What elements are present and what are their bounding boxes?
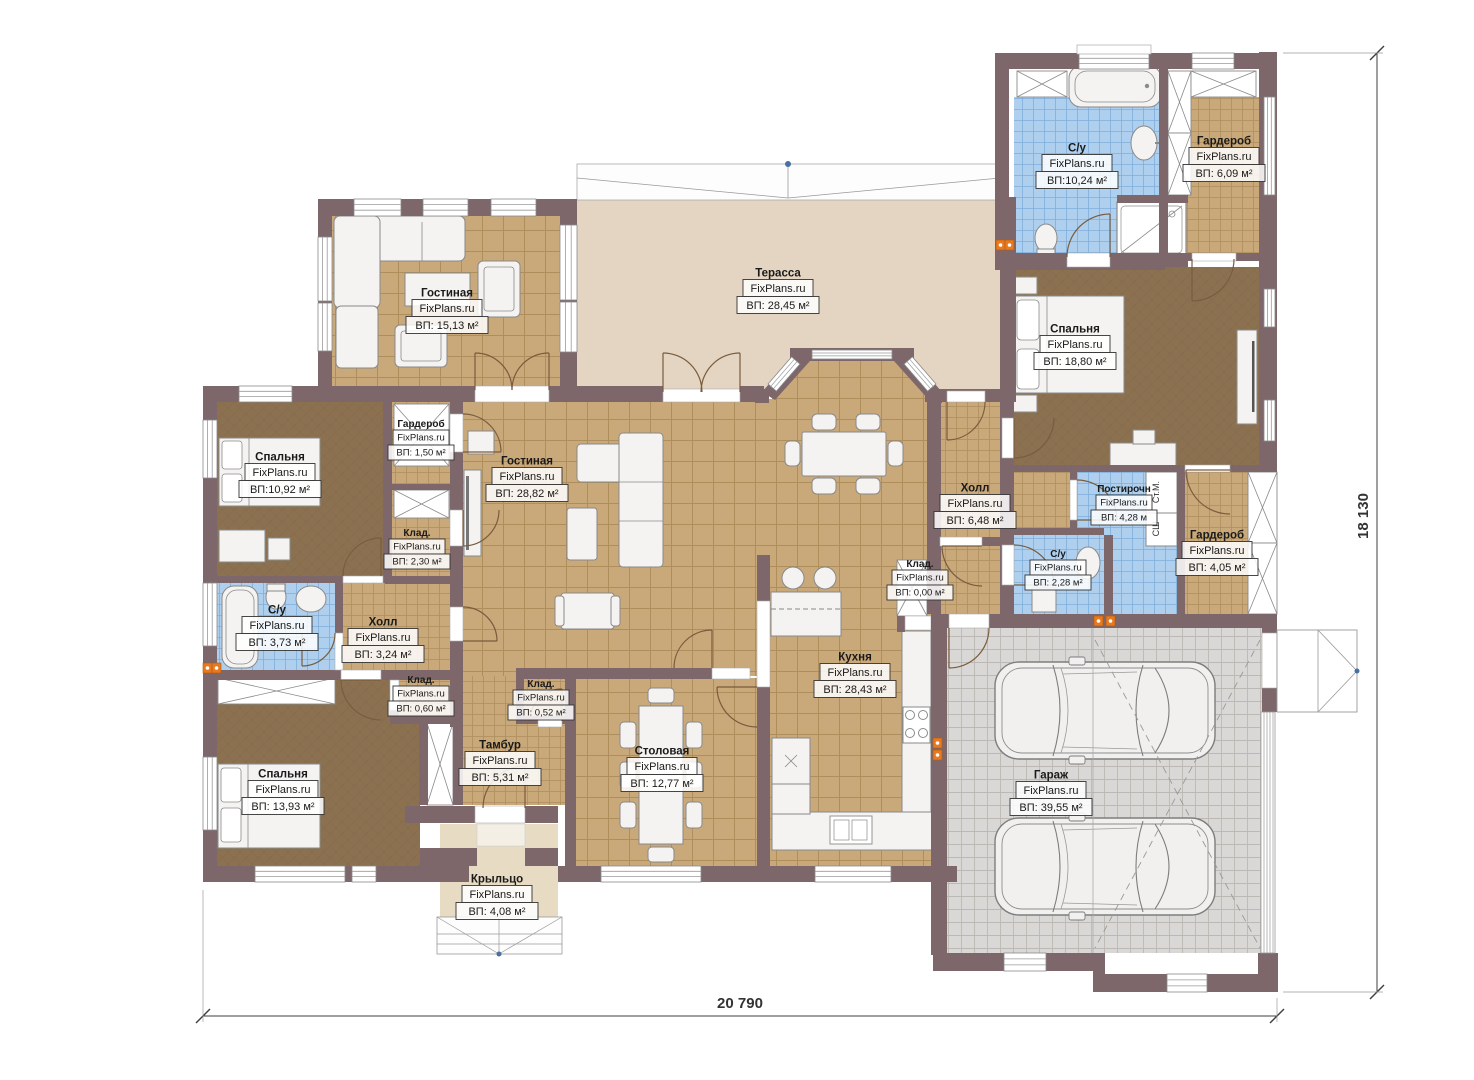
svg-text:FixPlans.ru: FixPlans.ru [1023, 785, 1078, 797]
svg-text:Гостиная: Гостиная [501, 456, 553, 468]
svg-text:FixPlans.ru: FixPlans.ru [419, 303, 474, 315]
svg-text:FixPlans.ru: FixPlans.ru [397, 433, 445, 444]
svg-text:FixPlans.ru: FixPlans.ru [255, 784, 310, 796]
svg-text:FixPlans.ru: FixPlans.ru [1049, 158, 1104, 170]
svg-text:FixPlans.ru: FixPlans.ru [355, 632, 410, 644]
svg-text:FixPlans.ru: FixPlans.ru [827, 667, 882, 679]
svg-text:Спальня: Спальня [255, 452, 305, 464]
svg-text:Постирочн: Постирочн [1097, 484, 1151, 495]
svg-text:Клад.: Клад. [906, 559, 933, 570]
svg-text:20 790: 20 790 [717, 995, 763, 1012]
svg-text:С/у: С/у [1050, 549, 1066, 560]
svg-text:ВП: 3,73 м²: ВП: 3,73 м² [248, 637, 305, 649]
svg-text:FixPlans.ru: FixPlans.ru [499, 471, 554, 483]
svg-text:ВП: 0,00 м²: ВП: 0,00 м² [895, 588, 944, 599]
svg-text:ВП: 4,05 м²: ВП: 4,05 м² [1188, 562, 1245, 574]
svg-text:FixPlans.ru: FixPlans.ru [750, 283, 805, 295]
svg-text:ВП: 18,80 м²: ВП: 18,80 м² [1043, 356, 1107, 368]
svg-text:FixPlans.ru: FixPlans.ru [1196, 151, 1251, 163]
svg-text:С/у: С/у [1068, 143, 1087, 155]
svg-text:Крыльцо: Крыльцо [471, 874, 523, 886]
svg-text:Гостиная: Гостиная [421, 288, 473, 300]
svg-text:Ст.М.: Ст.М. [1151, 481, 1161, 503]
svg-text:ВП: 0,60 м²: ВП: 0,60 м² [396, 704, 445, 715]
svg-text:Гардероб: Гардероб [397, 418, 444, 430]
svg-text:FixPlans.ru: FixPlans.ru [1100, 498, 1148, 509]
svg-text:С/у: С/у [268, 605, 287, 617]
svg-text:ВП: 5,31 м²: ВП: 5,31 м² [471, 772, 528, 784]
svg-text:ВП: 28,43 м²: ВП: 28,43 м² [823, 684, 887, 696]
svg-text:ВП: 6,09 м²: ВП: 6,09 м² [1195, 168, 1252, 180]
svg-text:FixPlans.ru: FixPlans.ru [469, 889, 524, 901]
svg-text:ВП: 2,28 м²: ВП: 2,28 м² [1033, 578, 1082, 589]
svg-text:Гардероб: Гардероб [1190, 530, 1244, 542]
svg-text:Клад.: Клад. [527, 679, 554, 690]
svg-text:FixPlans.ru: FixPlans.ru [472, 755, 527, 767]
svg-text:ВП: 39,55 м²: ВП: 39,55 м² [1019, 802, 1083, 814]
svg-text:FixPlans.ru: FixPlans.ru [896, 573, 944, 584]
svg-text:FixPlans.ru: FixPlans.ru [249, 620, 304, 632]
svg-text:ВП: 1,50 м²: ВП: 1,50 м² [396, 448, 445, 459]
svg-text:Спальня: Спальня [1050, 324, 1100, 336]
svg-text:FixPlans.ru: FixPlans.ru [397, 689, 445, 700]
svg-text:Спальня: Спальня [258, 769, 308, 781]
svg-text:ВП: 3,24 м²: ВП: 3,24 м² [354, 649, 411, 661]
svg-text:ВП: 28,45 м²: ВП: 28,45 м² [746, 300, 810, 312]
svg-text:Гараж: Гараж [1034, 770, 1069, 782]
svg-text:ВП:10,92 м²: ВП:10,92 м² [250, 484, 310, 496]
svg-text:ВП: 28,82 м²: ВП: 28,82 м² [495, 488, 559, 500]
svg-text:ВП:10,24 м²: ВП:10,24 м² [1047, 175, 1107, 187]
svg-text:ВП: 15,13 м²: ВП: 15,13 м² [415, 320, 479, 332]
svg-text:Холл: Холл [369, 617, 398, 629]
svg-text:FixPlans.ru: FixPlans.ru [252, 467, 307, 479]
svg-text:ВП: 6,48 м²: ВП: 6,48 м² [946, 515, 1003, 527]
svg-text:ВП: 12,77 м²: ВП: 12,77 м² [630, 778, 694, 790]
svg-text:Терасса: Терасса [755, 268, 801, 280]
svg-text:Столовая: Столовая [635, 746, 690, 758]
svg-text:FixPlans.ru: FixPlans.ru [393, 542, 441, 553]
svg-text:FixPlans.ru: FixPlans.ru [947, 498, 1002, 510]
svg-text:Гардероб: Гардероб [1197, 136, 1251, 148]
svg-text:FixPlans.ru: FixPlans.ru [1034, 563, 1082, 574]
svg-text:FixPlans.ru: FixPlans.ru [1189, 545, 1244, 557]
svg-text:Клад.: Клад. [407, 675, 434, 686]
svg-text:FixPlans.ru: FixPlans.ru [1047, 339, 1102, 351]
svg-text:Холл: Холл [961, 483, 990, 495]
svg-text:ВП: 4,28 м: ВП: 4,28 м [1101, 513, 1147, 524]
svg-text:FixPlans.ru: FixPlans.ru [634, 761, 689, 773]
svg-text:ВП: 13,93 м²: ВП: 13,93 м² [251, 801, 315, 813]
svg-text:Клад.: Клад. [403, 528, 430, 539]
svg-text:ВП: 2,30 м²: ВП: 2,30 м² [392, 557, 441, 568]
svg-text:ВП: 0,52 м²: ВП: 0,52 м² [516, 708, 565, 719]
svg-text:ВП: 4,08 м²: ВП: 4,08 м² [468, 906, 525, 918]
svg-text:18 130: 18 130 [1355, 493, 1372, 539]
svg-text:Тамбур: Тамбур [479, 740, 521, 752]
svg-text:FixPlans.ru: FixPlans.ru [517, 693, 565, 704]
svg-text:Кухня: Кухня [838, 652, 872, 664]
